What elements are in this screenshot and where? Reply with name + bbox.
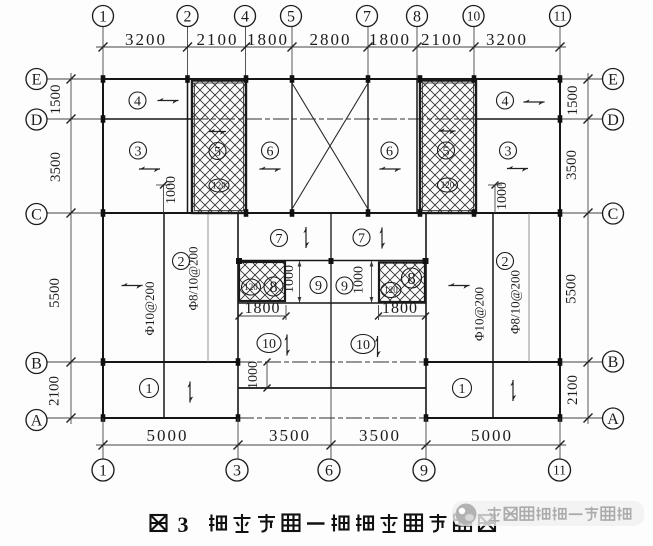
svg-text:120: 120 bbox=[384, 285, 398, 295]
svg-text:Φ10@200: Φ10@200 bbox=[142, 282, 157, 336]
svg-text:B: B bbox=[608, 354, 619, 371]
svg-text:1: 1 bbox=[99, 462, 107, 479]
svg-text:2800: 2800 bbox=[310, 30, 352, 49]
svg-text:2: 2 bbox=[184, 8, 192, 25]
svg-text:11: 11 bbox=[554, 9, 567, 24]
svg-text:1500: 1500 bbox=[565, 86, 581, 116]
svg-text:A: A bbox=[607, 411, 619, 428]
svg-text:7: 7 bbox=[363, 8, 371, 25]
svg-text:2100: 2100 bbox=[421, 30, 463, 49]
svg-text:5500: 5500 bbox=[47, 278, 63, 308]
svg-text:120: 120 bbox=[244, 282, 258, 292]
svg-text:10: 10 bbox=[356, 338, 370, 353]
svg-text:6: 6 bbox=[386, 144, 393, 159]
svg-text:5000: 5000 bbox=[147, 426, 189, 445]
svg-text:8: 8 bbox=[407, 269, 416, 288]
svg-text:1500: 1500 bbox=[48, 85, 64, 115]
svg-text:1000: 1000 bbox=[164, 176, 179, 204]
svg-text:2100: 2100 bbox=[197, 30, 239, 49]
svg-text:7: 7 bbox=[358, 231, 365, 246]
svg-text:2100: 2100 bbox=[565, 375, 581, 405]
svg-text:5: 5 bbox=[287, 8, 295, 25]
svg-text:D: D bbox=[31, 112, 43, 129]
svg-text:3: 3 bbox=[178, 512, 189, 537]
svg-text:1: 1 bbox=[99, 8, 107, 25]
svg-text:E: E bbox=[32, 71, 42, 88]
svg-text:10: 10 bbox=[262, 337, 276, 352]
svg-text:3500: 3500 bbox=[359, 426, 401, 445]
svg-text:7: 7 bbox=[276, 232, 283, 247]
svg-text:B: B bbox=[31, 355, 42, 372]
svg-text:5000: 5000 bbox=[471, 426, 513, 445]
svg-text:A: A bbox=[31, 412, 43, 429]
svg-text:2: 2 bbox=[178, 255, 185, 270]
svg-text:3500: 3500 bbox=[564, 150, 580, 180]
svg-text:C: C bbox=[608, 206, 619, 223]
svg-text:2100: 2100 bbox=[47, 376, 63, 406]
svg-text:1000: 1000 bbox=[352, 266, 367, 294]
svg-text:1800: 1800 bbox=[247, 30, 289, 49]
svg-text:4: 4 bbox=[241, 8, 249, 25]
svg-text:8: 8 bbox=[270, 279, 278, 296]
svg-text:E: E bbox=[608, 71, 618, 88]
svg-text:Φ10@200: Φ10@200 bbox=[472, 287, 487, 341]
svg-text:120: 120 bbox=[441, 180, 455, 190]
svg-text:3500: 3500 bbox=[48, 152, 64, 182]
svg-text:9: 9 bbox=[315, 279, 322, 294]
svg-text:3500: 3500 bbox=[269, 426, 311, 445]
svg-text:3200: 3200 bbox=[125, 30, 167, 49]
svg-text:6: 6 bbox=[267, 144, 274, 159]
svg-text:3: 3 bbox=[233, 462, 241, 479]
svg-text:9: 9 bbox=[341, 279, 348, 294]
svg-text:120: 120 bbox=[212, 181, 226, 191]
svg-text:C: C bbox=[31, 206, 42, 223]
svg-text:11: 11 bbox=[553, 463, 566, 478]
svg-text:1000: 1000 bbox=[246, 361, 261, 389]
svg-text:8: 8 bbox=[413, 8, 421, 25]
svg-text:1: 1 bbox=[146, 382, 153, 397]
svg-text:1000: 1000 bbox=[495, 182, 510, 210]
svg-text:1000: 1000 bbox=[282, 265, 297, 293]
svg-text:4: 4 bbox=[502, 94, 509, 109]
svg-text:10: 10 bbox=[467, 9, 481, 24]
svg-text:1: 1 bbox=[459, 382, 466, 397]
svg-text:1800: 1800 bbox=[369, 30, 411, 49]
svg-text:5: 5 bbox=[214, 145, 221, 160]
svg-text:5500: 5500 bbox=[564, 274, 580, 304]
svg-text:2: 2 bbox=[502, 255, 509, 270]
svg-text:Φ8/10@200: Φ8/10@200 bbox=[508, 270, 523, 334]
svg-text:1800: 1800 bbox=[245, 300, 281, 317]
svg-text:6: 6 bbox=[325, 462, 333, 479]
svg-text:1800: 1800 bbox=[382, 300, 418, 317]
svg-text:4: 4 bbox=[134, 94, 141, 109]
svg-text:3: 3 bbox=[505, 144, 512, 159]
svg-text:3200: 3200 bbox=[486, 30, 528, 49]
svg-text:5: 5 bbox=[443, 144, 450, 159]
svg-text:3: 3 bbox=[135, 144, 142, 159]
svg-text:9: 9 bbox=[420, 462, 428, 479]
svg-text:D: D bbox=[607, 112, 619, 129]
